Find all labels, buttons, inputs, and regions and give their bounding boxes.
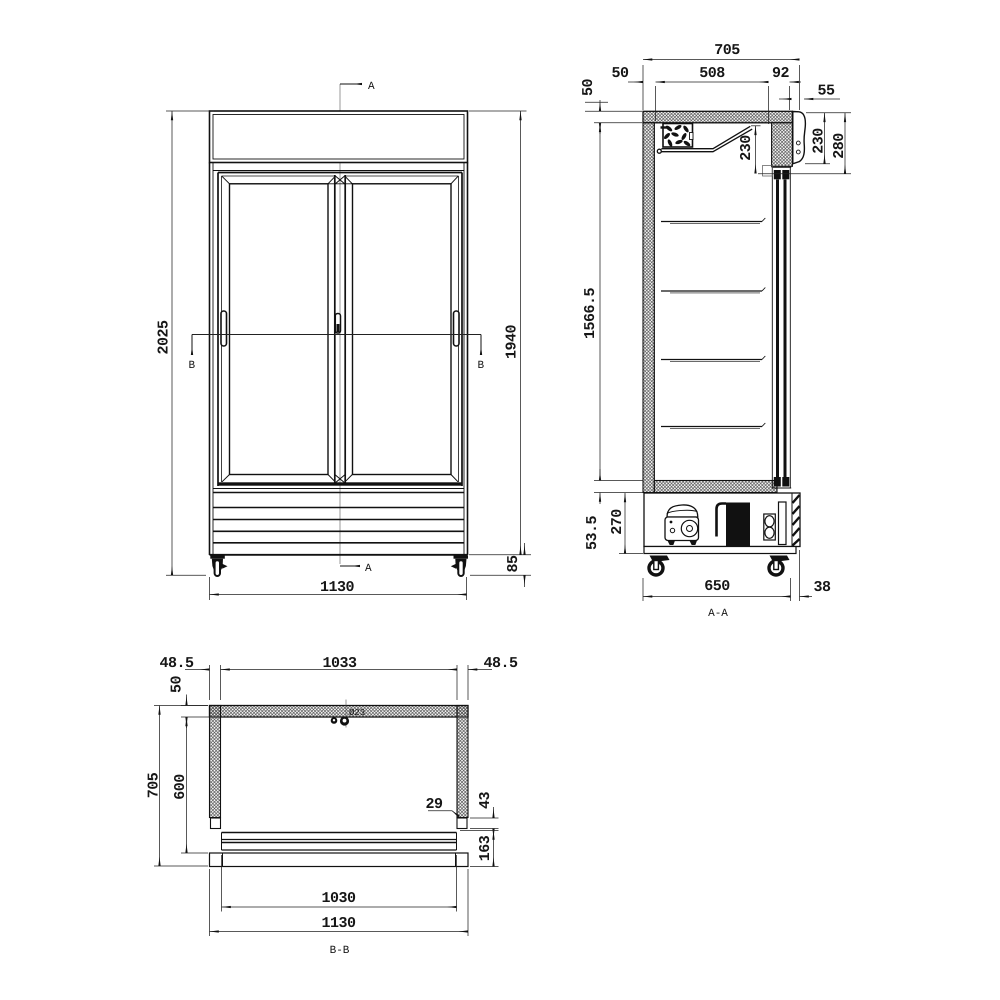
svg-text:163: 163 [477,835,494,861]
svg-text:230: 230 [738,135,755,161]
svg-text:508: 508 [699,65,725,82]
svg-text:53.5: 53.5 [584,516,601,551]
svg-text:A: A [368,81,375,93]
svg-text:48.5: 48.5 [159,655,194,672]
svg-text:650: 650 [704,578,730,595]
svg-text:1030: 1030 [321,890,356,907]
svg-text:B-B: B-B [330,945,350,957]
svg-text:92: 92 [772,65,790,82]
svg-text:29: 29 [425,796,443,813]
svg-text:48.5: 48.5 [483,655,518,672]
svg-text:705: 705 [714,42,740,59]
svg-text:55: 55 [817,83,835,100]
svg-text:2025: 2025 [155,320,172,355]
svg-text:1033: 1033 [322,655,357,672]
svg-text:38: 38 [813,579,831,596]
svg-text:50: 50 [580,79,597,97]
svg-text:43: 43 [477,792,494,810]
svg-text:705: 705 [145,772,162,798]
svg-text:A-A: A-A [708,608,728,620]
svg-text:1130: 1130 [320,579,355,596]
svg-text:A: A [365,563,372,575]
svg-text:B: B [189,360,196,372]
svg-text:600: 600 [172,774,189,800]
svg-text:280: 280 [831,133,848,159]
svg-text:230: 230 [810,128,827,154]
svg-text:1566.5: 1566.5 [582,288,599,340]
svg-text:270: 270 [609,509,626,535]
svg-text:Ø23: Ø23 [349,708,365,718]
svg-text:50: 50 [168,676,185,694]
svg-text:1940: 1940 [503,325,520,360]
svg-text:85: 85 [505,555,522,573]
svg-text:50: 50 [611,65,629,82]
svg-text:1130: 1130 [321,915,356,932]
svg-text:B: B [478,360,485,372]
